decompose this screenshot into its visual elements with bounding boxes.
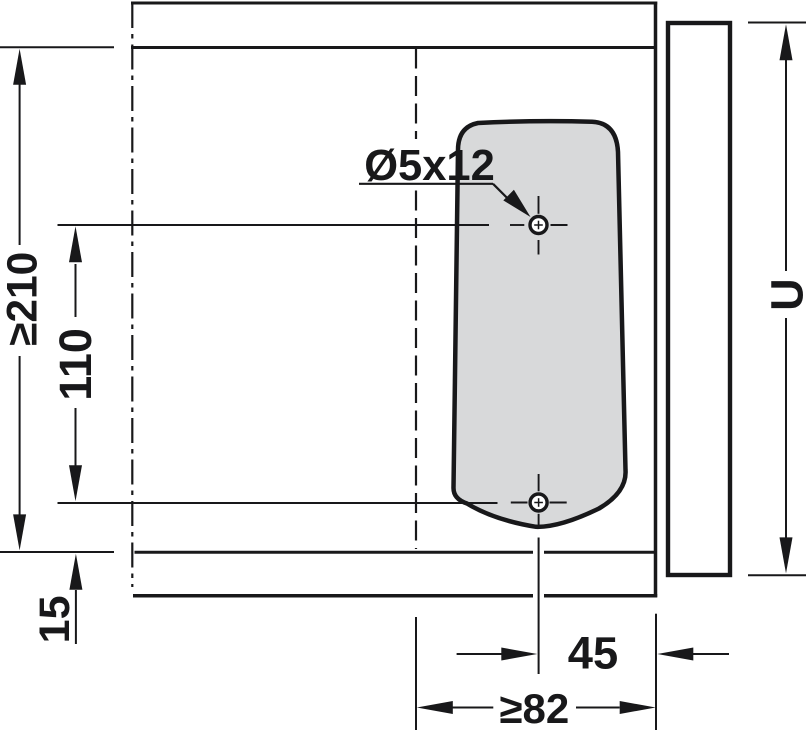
svg-text:≥82: ≥82 [500,685,570,730]
svg-text:U: U [761,278,806,311]
svg-text:Ø5x12: Ø5x12 [364,142,495,190]
svg-text:110: 110 [50,328,101,401]
svg-text:≥210: ≥210 [0,252,47,346]
svg-text:45: 45 [568,628,618,679]
svg-text:15: 15 [31,595,79,643]
